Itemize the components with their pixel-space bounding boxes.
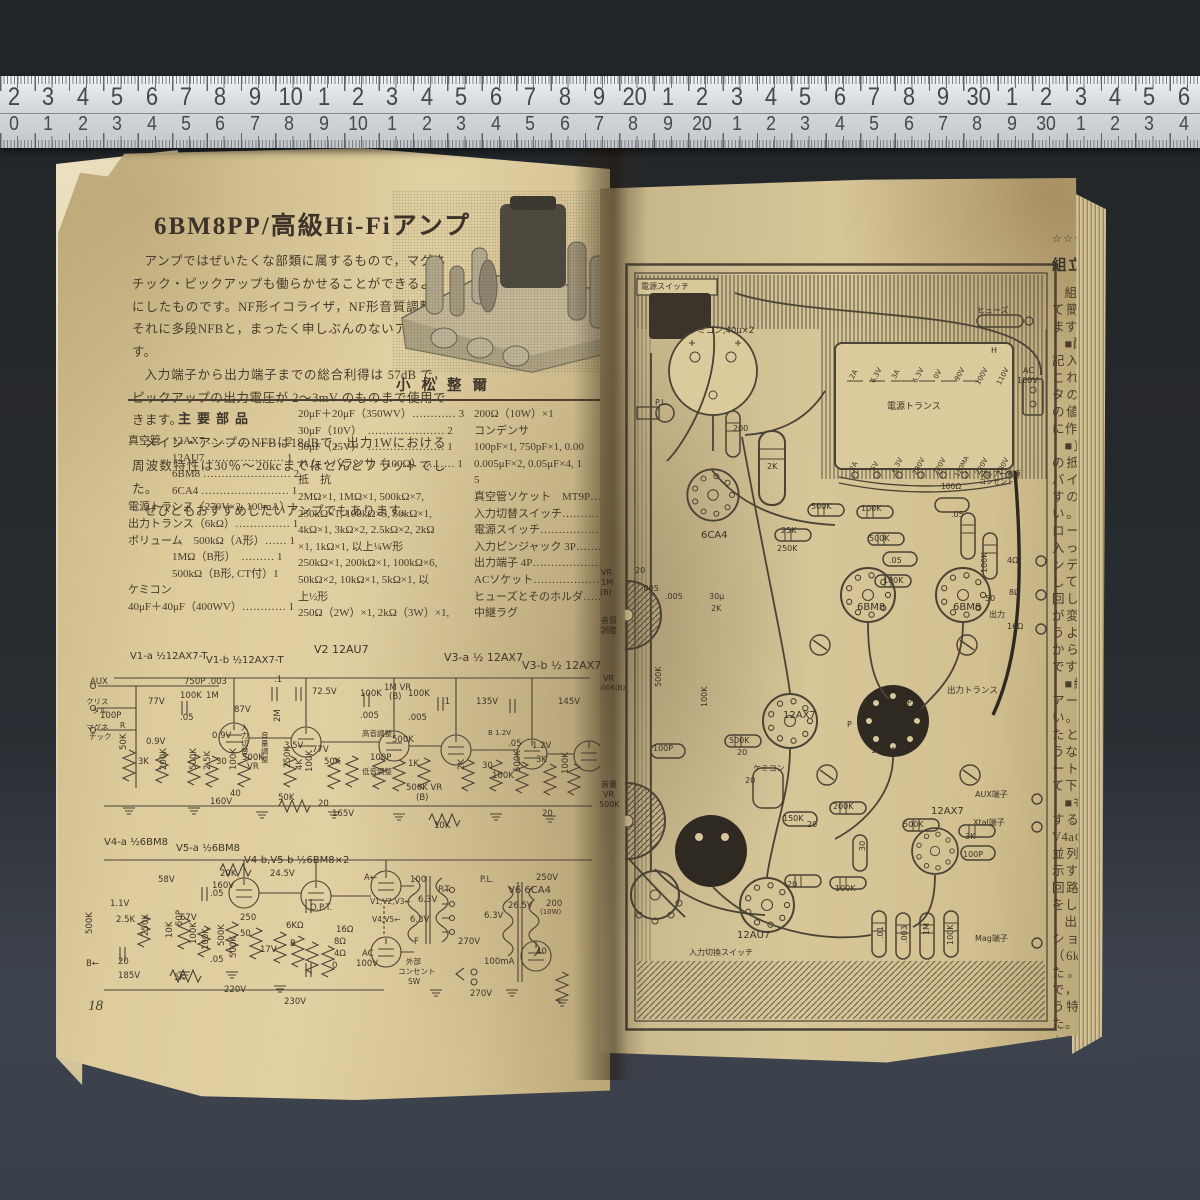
schematic-label: 100K [408,690,430,699]
transformer-terminal-label: 2A [849,461,860,473]
schematic-label: (B) [416,794,428,803]
body-paragraph: 組立と調整について簡単にのべておきます。 [1052,285,1179,336]
ruler-number: 6 [485,84,506,110]
ruler-number: 7 [175,84,196,110]
ruler-cm-ticks-bottom [0,133,1200,148]
schematic-label: P.L. [480,876,494,885]
ruler-number: 3 [38,84,59,110]
parts-line: ハム・バランサ（100Ω）……… 1 [298,456,480,473]
schematic-label: 135V [476,698,498,707]
ruler-number: 2 [3,84,24,110]
schematic-label: 100K [360,690,382,699]
parts-line: 入力ピンジャック 3P……… [474,539,619,556]
schematic-label: V3-a ½ 12AX7 [444,652,523,664]
schematic-label: SW [408,978,420,986]
ruler-number: 7 [932,114,953,135]
schematic-label: V4,V5← [372,916,400,924]
schematic-label: 50K [324,758,340,767]
ruler-number: 2 [1104,114,1125,135]
schematic-label: 500K [190,748,199,770]
ruler-number: 6 [829,84,850,110]
author-name: 小松整爾 [396,374,498,395]
parts-line: ボリューム 500kΩ（A形）…… 1 [128,533,304,550]
parts-line: 40μF＋40μF（400WV）………… 1 [128,599,304,616]
ruler-number: 4 [72,84,93,110]
parts-line: 50μF（25V） ………………… 1 [298,439,480,456]
schematic-label: 10K [434,822,450,831]
schematic-label: 270V [458,938,480,947]
schematic-label: 5K [174,974,185,983]
schematic-label: 8Ω [334,938,346,947]
ruler-number: 3 [1070,84,1091,110]
schematic-label: AC [362,950,374,959]
schematic-label: 2.5K [116,916,135,925]
schematic-label: 20 [118,958,129,967]
body-paragraph: ■配線図に電圧値を記入していますが，これはふつうのテスタの測定値です。この値に近… [1052,336,1179,438]
body-paragraph: ■終段の6BM8はペアーを使用して下さい。また，NFをかけたとき，発振するような… [1052,676,1179,795]
schematic-label: V5-a ½6BM8 [176,844,240,855]
schematic-label: .05 [210,890,224,899]
ruler-number: 9 [313,114,334,135]
transformer-terminal-label: 220V [933,457,948,477]
ruler-number: 6 [210,114,231,135]
schematic-label: .1 [274,676,282,685]
schematic-label: 40 [536,948,547,957]
ruler-number: 5 [795,84,816,110]
ruler-number: 1 [382,114,403,135]
schematic-label: .005 [408,714,427,723]
ruler-number: 2 [348,84,369,110]
circuit-schematic: V1-a ½12AX7-TV1-b ½12AX7-TV2 12AU7V3-a ½… [84,638,604,1030]
ruler-number: 2 [416,114,437,135]
schematic-label: P.T. [438,886,451,895]
schematic-label: 4K [296,759,305,770]
schematic-label: 250 [240,914,256,923]
ruler-number: 4 [1104,84,1125,110]
schematic-label: 高音調整 [362,730,392,738]
schematic-label: V1-a ½12AX7-T [130,652,207,663]
ruler-number: 2 [1036,84,1057,110]
schematic-label: 20 [318,800,329,809]
schematic-label: .1 [442,698,450,707]
ruler-number: 9 [657,114,678,135]
parts-heading: 主要部品 [128,408,304,427]
chassis-label: VR [601,569,612,578]
ruler-number: 1 [657,84,678,110]
ruler-number: 4 [416,84,437,110]
ruler-number: 7 [244,114,265,135]
schematic-label: クリス [86,698,109,706]
chassis-label: 音量 [601,781,617,790]
schematic-label: 低音調整 [362,768,392,776]
schematic-label: B 1.2V [488,730,511,738]
schematic-label: 3K [138,758,149,767]
ruler-number: 9 [588,84,609,110]
ruler-number: 4 [141,114,162,135]
parts-line: 6BM8 …………………… 2 [128,466,304,483]
ruler-number: 9 [932,84,953,110]
schematic-label: 4Ω [334,950,346,959]
schematic-label: 200K [160,748,169,770]
parts-line: 100pF×1, 750pF×1, 0.00 [474,439,619,456]
schematic-label: 0 [332,962,337,971]
ruler-scale-bottom: 01234567891012345678920123456789301234 [2,114,1196,135]
ruler-number: 2 [760,114,781,135]
schematic-label: B [290,940,296,949]
schematic-label: 6KΩ [286,922,303,931]
amplifier-photo [392,190,616,374]
ruler-number: 1 [38,114,59,135]
page-number-right: 19 [1130,1014,1145,1031]
body-paragraph: ■もし，高域で発振するようでしたら，V4aのプレート回路に並列に配線図点線で示す… [1052,795,1179,914]
ruler-number: 9 [1001,114,1022,135]
transformer-terminal-label: 280V [996,457,1011,477]
parts-line: 250Ω（2W）×1, 2kΩ（3W）×1, [298,605,480,622]
left-page: 6BM8PP/高級Hi-Fiアンプ アンプではぜいたくな部類に属するもので，マグ… [58,148,610,1100]
parts-line: 500kΩ（B形, CT付）1 [128,566,304,583]
schematic-label: 1M [206,692,219,701]
schematic-label: 100K [180,692,202,701]
schematic-label: 外部 [406,958,421,966]
magazine-photo-scene: 23456789101234567892012345678930123456 0… [0,0,1200,1200]
chassis-label: 500K(B) [597,685,625,693]
ruler-number: 2 [72,114,93,135]
schematic-label: 3.5V [284,742,303,751]
ruler-number: 3 [795,114,816,135]
parts-column-2: 20μF＋20μF（350WV）………… 330μF（10V） ………………… … [298,406,480,622]
schematic-label: F [414,938,419,947]
schematic-label: (B) [389,693,401,702]
schematic-label: V4-b,V5-b ½6BM8×2 [244,856,349,867]
parts-line: ケミコン [128,582,304,599]
ruler-number: 6 [898,114,919,135]
ruler-number: 30 [1036,114,1057,135]
parts-line: 0.005μF×2, 0.05μF×4, 1 [474,456,619,473]
parts-line: ×1, 1kΩ×1, 以上¼W形 [298,539,480,556]
schematic-label: VR [247,763,259,772]
schematic-label: 24.5V [270,870,295,879]
schematic-label: 100 [410,876,426,885]
ruler-number: 5 [864,114,885,135]
parts-column-3: 200Ω（10W）×1コンデンサ100pF×1, 750pF×1, 0.000.… [474,406,619,622]
ruler-number: 4 [485,114,506,135]
ruler-number: 4 [760,84,781,110]
schematic-label: 1K [408,760,419,769]
schematic-label: 500K [514,750,523,772]
schematic-label: コンセント [398,968,436,976]
schematic-label: 250K [142,914,151,936]
schematic-label: 270V [470,990,492,999]
chassis-label: (B) [600,589,612,598]
schematic-label: 58V [158,876,175,885]
schematic-label: 500K [86,912,95,934]
parts-line: ヒューズとそのホルダ…… [474,589,619,606]
section-heading: 組立・調整の要点 [1052,254,1179,275]
parts-line: 20μF＋20μF（350WV）………… 3 [298,406,480,423]
transformer-terminal-label: 6.3V [891,457,905,475]
chassis-label: VR [603,791,614,800]
ruler-number: 6 [1173,84,1194,110]
ruler-number: 8 [898,84,919,110]
parts-line: 6CA4 …………………… 1 [128,483,304,500]
schematic-label: 音量調整 [261,732,272,764]
ruler-number: 5 [451,84,472,110]
parts-column-1: 主要部品 真空管 12AX7 ………………… 2 12AU7 ………………… 1… [128,406,304,616]
schematic-label: 87V [234,706,251,715]
ruler-number: 3 [451,114,472,135]
chassis-wiring-diagram: 電源スイッチHケミコン,40μ×2ヒューズH電源トランスAC100VP.L.20… [625,263,1057,1031]
schematic-label: V2 12AU7 [314,644,369,656]
schematic-label: 230V [284,998,306,1007]
schematic-label: 1.2V [532,742,551,751]
schematic-label: 500K [218,924,227,946]
chassis-label: 調整 [601,627,617,636]
ruler-number: 8 [623,114,644,135]
ruler-number: 7 [520,84,541,110]
ruler-number: 2 [692,84,713,110]
schematic-label: 100K [306,750,315,772]
ruler-number: 1 [1070,114,1091,135]
transformer-terminal-label: 120MA [954,455,971,478]
schematic-label: .05 [180,714,194,723]
ruler-number: 7 [588,114,609,135]
schematic-label: .05 [210,956,224,965]
schematic-label: 17V [260,946,277,955]
schematic-label: 30 [482,762,493,771]
body-paragraph: 出力トランスはナショナルのOTH—10（6k）を使用しました。出力は8W程度で，… [1052,914,1179,1033]
page-number-left: 18 [88,998,103,1015]
parts-line: 中継ラグ [474,605,619,622]
schematic-label: 160V [210,798,232,807]
schematic-label: A← [364,874,377,883]
parts-line: 真空管ソケット MT9P…… [474,489,619,506]
ruler-number: 20 [692,114,713,135]
ruler-number: 7 [864,84,885,110]
parts-line: 電源スイッチ………………… [474,522,619,539]
transformer-terminal-label: 220V [975,457,990,477]
schematic-label: 50K [120,734,129,750]
schematic-label: V4-a ½6BM8 [104,838,168,849]
parts-line: 200Ω（10W）×1 [474,406,619,423]
stars-row-top: ☆☆☆☆☆☆☆☆☆☆ [1052,232,1179,245]
parts-line: 4kΩ×1, 3kΩ×2, 2.5kΩ×2, 2kΩ [298,522,480,539]
schematic-label: 6.3V [410,916,429,925]
schematic-label: 100K [492,772,514,781]
parts-line: 1MΩ（B形） ……… 1 [128,549,304,566]
schematic-label: 0.9V [146,738,165,747]
schematic-label: 26.5V [508,902,533,911]
schematic-label: 20 [542,810,553,819]
parts-line: 上½形 [298,589,480,606]
schematic-label: V1-b ½12AX7-T [206,656,284,667]
schematic-label: 750P [184,678,205,687]
schematic-label: O.P.T. [310,904,332,913]
parts-line: 250kΩ×1, 200kΩ×1, 100kΩ×6, [298,555,480,572]
transformer-terminal-label: 280V [912,457,927,477]
schematic-label: 500K VR [406,784,442,793]
schematic-label: 0.9V [212,732,231,741]
ruler-number: 4 [829,114,850,135]
parts-line: 入力切替スイッチ…………… [474,506,619,523]
schematic-label: 16Ω [336,926,353,935]
schematic-label: (10W) [540,909,561,917]
schematic-label: 2.5K [204,751,213,770]
ruler-number: 3 [726,84,747,110]
schematic-label: .005 [360,712,379,721]
schematic-label: 100K [562,752,571,774]
assembly-notes-column: ☆☆☆☆☆☆☆☆☆☆ 組立・調整の要点 組立と調整について簡単にのべておきます。… [1052,232,1179,1046]
schematic-label: 3K [536,756,547,765]
ruler-number: 5 [520,114,541,135]
ruler-number: 5 [1139,84,1160,110]
divider-line [128,399,606,401]
ruler-number: 8 [279,114,300,135]
ruler-number: 8 [210,84,231,110]
parts-line: 出力端子 4P………………… [474,555,619,572]
schematic-label: B← [86,960,99,969]
ruler-number: 5 [107,84,128,110]
parts-line: 電源トランス（270V×2, 100mA）1 [128,499,304,516]
chassis-label: VR [603,675,614,684]
schematic-label: 50 [240,930,251,939]
schematic-label: 1.1V [110,900,129,909]
schematic-label: 100P [100,712,121,721]
schematic-label: チック [89,733,112,741]
right-page: 電源スイッチHケミコン,40μ×2ヒューズH電源トランスAC100VP.L.20… [600,178,1078,1066]
ruler-number: 10 [348,114,369,135]
parts-line: 5 [474,472,619,489]
schematic-label: 6.3V [484,912,503,921]
schematic-label: マグネ [86,724,109,732]
ruler-number: 9 [244,84,265,110]
schematic-label: .003 [208,678,227,687]
schematic-label: 50K [278,794,294,803]
parts-line: 出力トランス（6kΩ）…………… 1 [128,516,304,533]
schematic-label: 30 [216,758,227,767]
schematic-label: V6 6CA4 [508,886,551,897]
schematic-label: 2K [458,759,467,770]
ruler-number: 10 [279,84,300,110]
schematic-label: 40 [230,790,241,799]
ruler-number: 6 [141,84,162,110]
schematic-label: 500K [392,736,414,745]
schematic-label: 100mA [484,958,514,967]
schematic-label: 77V [148,698,165,707]
schematic-label: .05 [508,740,522,749]
ruler-number: 0 [3,114,24,135]
schematic-label: 72.5V [312,688,337,697]
ruler-number: 5 [175,114,196,135]
schematic-label: V1,V2,V3← [370,898,411,906]
parts-line: コンデンサ [474,423,619,440]
parts-line: 50kΩ×2, 10kΩ×1, 5kΩ×1, 以 [298,572,480,589]
ruler-number: 1 [1001,84,1022,110]
schematic-label: 6.3V [418,896,437,905]
ruler-number: 20 [623,84,644,110]
ruler-number: 4 [1173,114,1194,135]
body-paragraph: ■直結回路では1個の抵抗値が違ってもバイアスが変化しますので注意して下さい。トー… [1052,438,1179,676]
parts-line: 真空管 12AX7 ………………… 2 [128,433,304,450]
ruler-number: 8 [554,84,575,110]
schematic-label: 100K [230,748,239,770]
parts-line: ACソケット………………… [474,572,619,589]
ruler-number: 6 [554,114,575,135]
schematic-label: 2M [274,709,283,722]
parts-line: 抵 抗 [298,472,480,489]
schematic-label: 100P [370,754,391,763]
ruler-number: 1 [726,114,747,135]
ruler-number: 1 [313,84,334,110]
parts-line: 30μF（10V） ………………… 2 [298,423,480,440]
chassis-label: 500K [599,801,620,810]
schematic-label: 165V [332,810,354,819]
parts-line: 12AU7 ………………… 1 [128,450,304,467]
metal-ruler: 23456789101234567892012345678930123456 0… [0,76,1200,148]
schematic-label: 500K [230,936,239,958]
ruler-number: 3 [382,84,403,110]
ruler-number: 3 [1139,114,1160,135]
schematic-label: 145V [558,698,580,707]
chassis-label: 1M [601,579,613,588]
schematic-label: 20K [220,870,236,879]
parts-line: 250kΩ×1, 100kΩ×3, 50kΩ×1, [298,506,480,523]
parts-line: 2MΩ×1, 1MΩ×1, 500kΩ×7, [298,489,480,506]
ruler-number: 8 [967,114,988,135]
schematic-label: 185V [118,972,140,981]
schematic-label: 入力切替 [241,724,252,756]
stars-row-bottom: ☆☆☆☆☆☆☆☆☆☆ [1052,1033,1179,1046]
ruler-number: 3 [107,114,128,135]
schematic-label: V3-b ½ 12AX7 [522,660,601,672]
chassis-label: 音質 [601,617,617,626]
schematic-label: 220V [224,986,246,995]
schematic-label: 10K [166,922,175,938]
schematic-label: 100V [356,960,378,969]
schematic-label: 250V [536,874,558,883]
schematic-label: 100K [190,922,199,944]
ruler-scale-top: 23456789101234567892012345678930123456 [2,84,1196,110]
schematic-label: 100K [202,928,211,950]
schematic-label: AUX [90,678,108,687]
ruler-number: 30 [967,84,988,110]
schematic-label: R [120,722,125,730]
transformer-terminal-label: 5V [870,461,881,473]
